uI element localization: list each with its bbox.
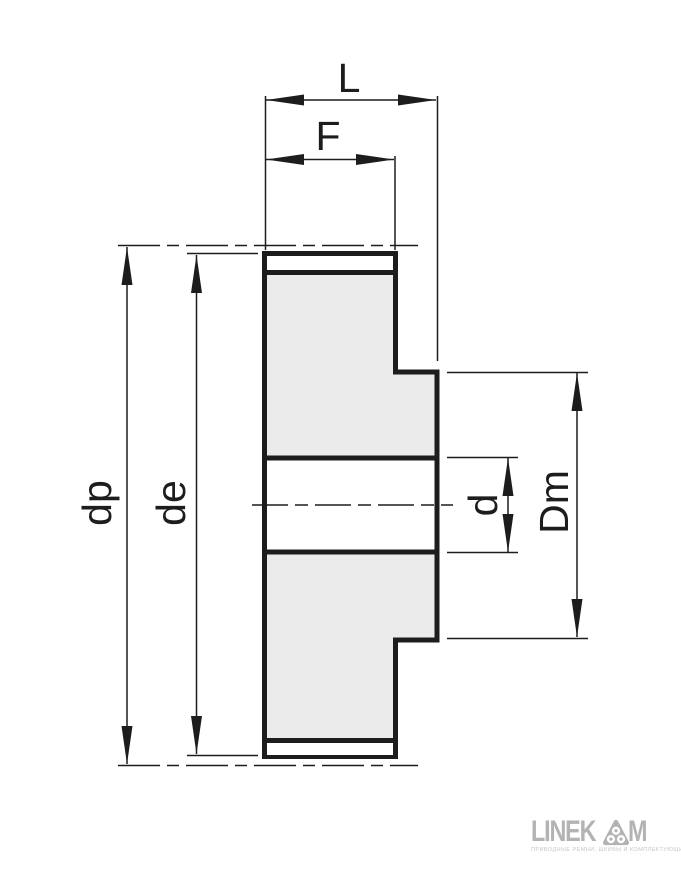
arrowhead-F-right bbox=[356, 154, 394, 165]
label-face-width: F bbox=[315, 113, 340, 159]
dimension-F: F bbox=[266, 113, 394, 165]
arrowhead-dp-bottom bbox=[122, 726, 133, 764]
arrowhead-d-top bbox=[503, 458, 514, 496]
dimension-de: de bbox=[148, 255, 202, 754]
arrowhead-Dm-bottom bbox=[572, 599, 583, 637]
dimension-dp: dp bbox=[74, 247, 133, 764]
label-bore-diameter: d bbox=[460, 494, 506, 517]
flange-top-strip bbox=[267, 256, 393, 270]
arrowhead-Dm-top bbox=[572, 373, 583, 411]
label-hub-diameter: Dm bbox=[531, 470, 577, 534]
linekom-logo: LINEK M ПРИВОДНЫЕ РЕМНИ, ШКИВЫ И КОМПЛЕК… bbox=[531, 819, 681, 853]
arrowhead-dp-top bbox=[122, 247, 133, 285]
label-overall-width: L bbox=[338, 55, 361, 101]
dimension-d: d bbox=[460, 458, 514, 552]
dimension-L: L bbox=[266, 55, 436, 106]
linekom-wordmark: LINEK M bbox=[531, 819, 681, 845]
pulley-dimension-drawing: L F dp de d Dm bbox=[0, 0, 681, 874]
linekom-triangle-icon bbox=[602, 819, 630, 846]
label-pitch-diameter: dp bbox=[74, 480, 120, 526]
logo-text-left: LINEK bbox=[531, 819, 595, 845]
logo-text-right: M bbox=[628, 819, 646, 845]
arrowhead-de-top bbox=[191, 255, 202, 293]
arrowhead-F-left bbox=[266, 154, 304, 165]
flange-bottom-strip bbox=[267, 743, 393, 755]
arrowhead-d-bottom bbox=[503, 514, 514, 552]
label-outside-diameter: de bbox=[148, 480, 194, 526]
arrowhead-L-left bbox=[266, 95, 304, 106]
arrowhead-L-right bbox=[398, 95, 436, 106]
arrowhead-de-bottom bbox=[191, 716, 202, 754]
dimension-Dm: Dm bbox=[531, 373, 583, 637]
